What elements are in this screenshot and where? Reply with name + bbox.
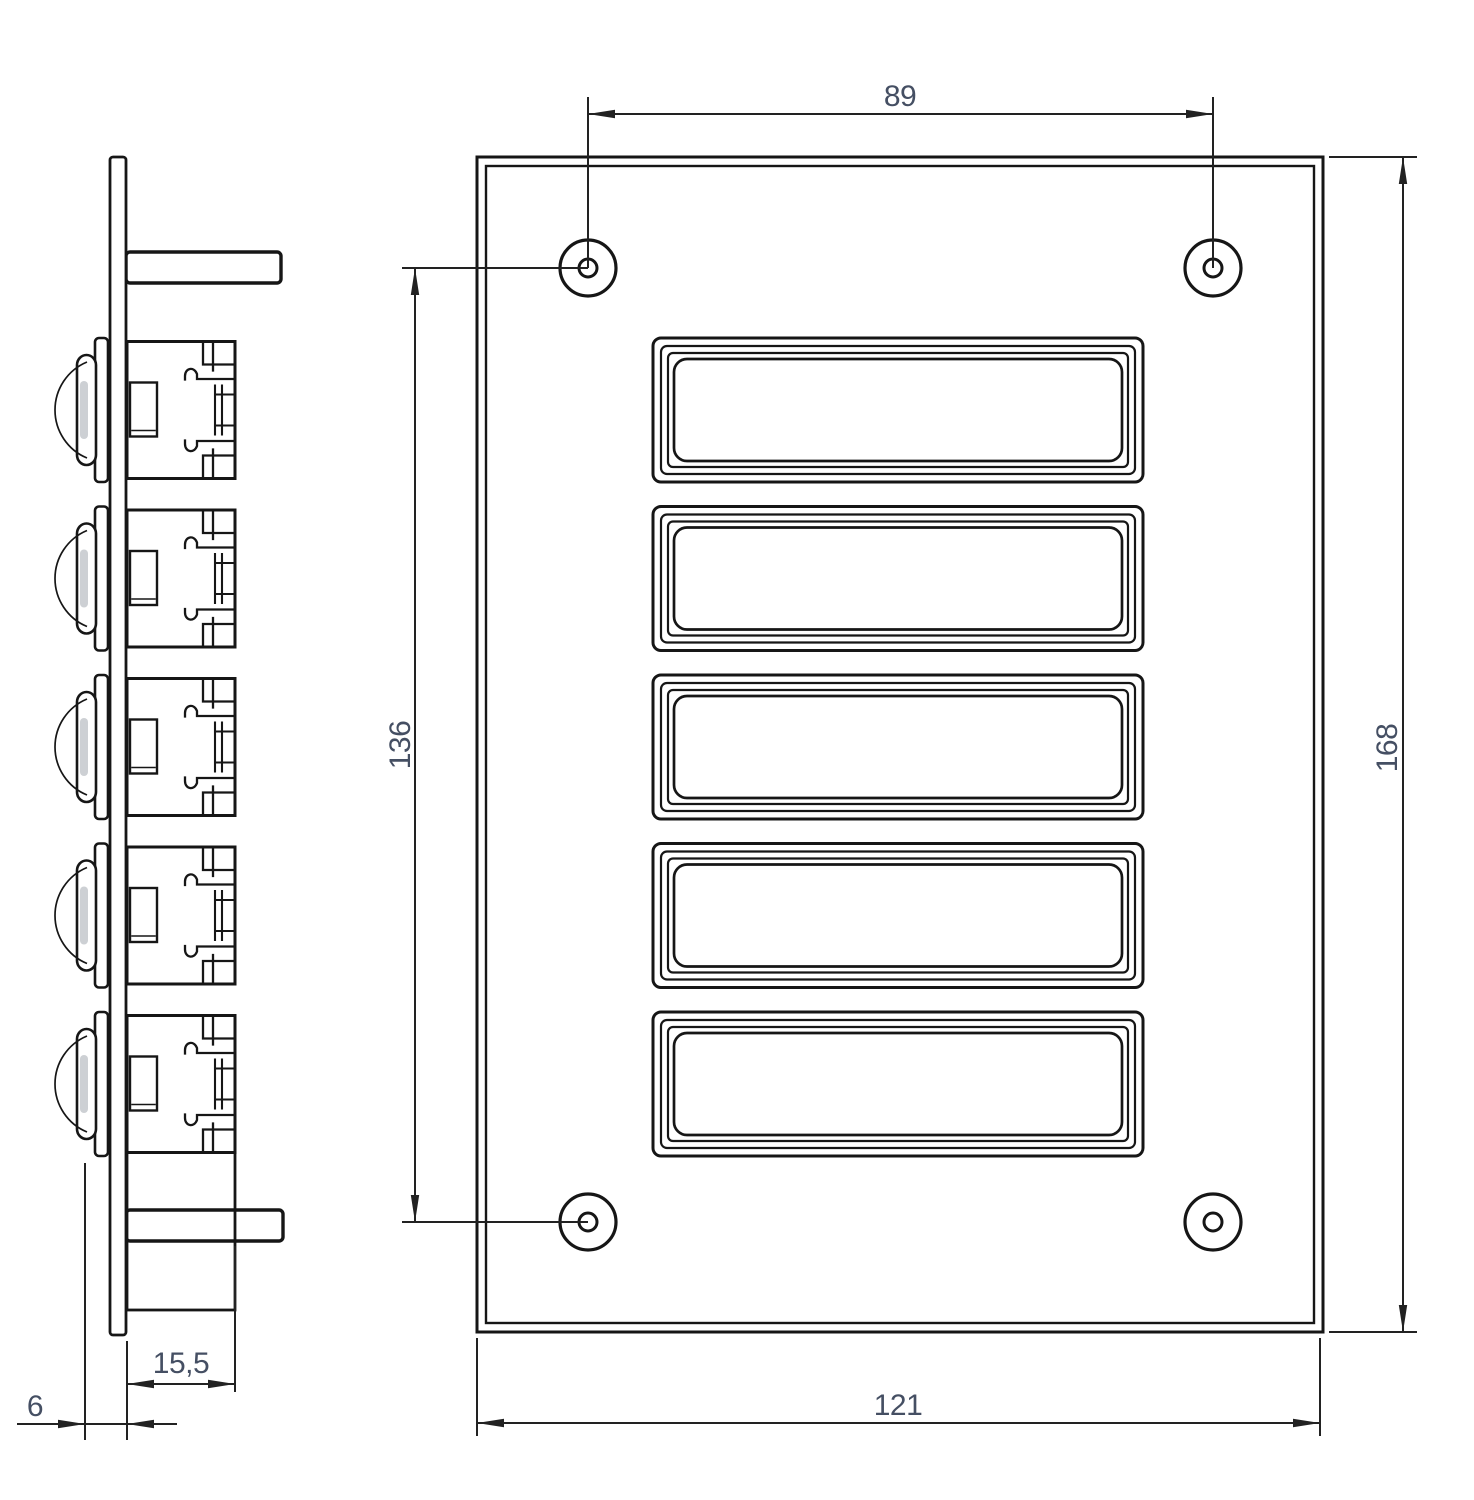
push-button-dome [55, 675, 108, 819]
push-button-dome [55, 507, 108, 651]
technical-drawing: 89 136 168 121 [0, 0, 1474, 1500]
switch-housing [127, 510, 235, 647]
front-view [477, 157, 1323, 1332]
dimension-plate-height: 168 [1329, 157, 1417, 1332]
dimension-label-6: 6 [27, 1390, 43, 1423]
side-view [55, 157, 283, 1335]
switch-housing [127, 679, 235, 816]
switch-housing [127, 847, 235, 984]
dimension-label-136: 136 [384, 721, 417, 770]
side-front-plate [110, 157, 126, 1335]
push-button-dome [55, 1012, 108, 1156]
dimension-plate-width: 121 [477, 1338, 1320, 1436]
dimension-front-offset: 6 [17, 1163, 177, 1440]
switch-housing [127, 1016, 235, 1153]
dimension-unit-depth: 15,5 [127, 1246, 235, 1440]
dimension-label-121: 121 [874, 1389, 923, 1422]
switch-housing [127, 342, 235, 479]
dimension-label-15-5: 15,5 [153, 1347, 209, 1380]
mounting-hole-bottom-right [1185, 1194, 1241, 1250]
side-mounting-bracket-top [126, 252, 281, 283]
push-button-dome [55, 338, 108, 482]
side-lower-column [127, 1152, 235, 1310]
dimension-label-89: 89 [884, 80, 916, 113]
push-button-dome [55, 844, 108, 988]
drawing-svg: 89 136 168 121 [0, 0, 1474, 1500]
side-mounting-bracket-bottom [126, 1210, 283, 1241]
dimension-label-168: 168 [1371, 724, 1404, 773]
